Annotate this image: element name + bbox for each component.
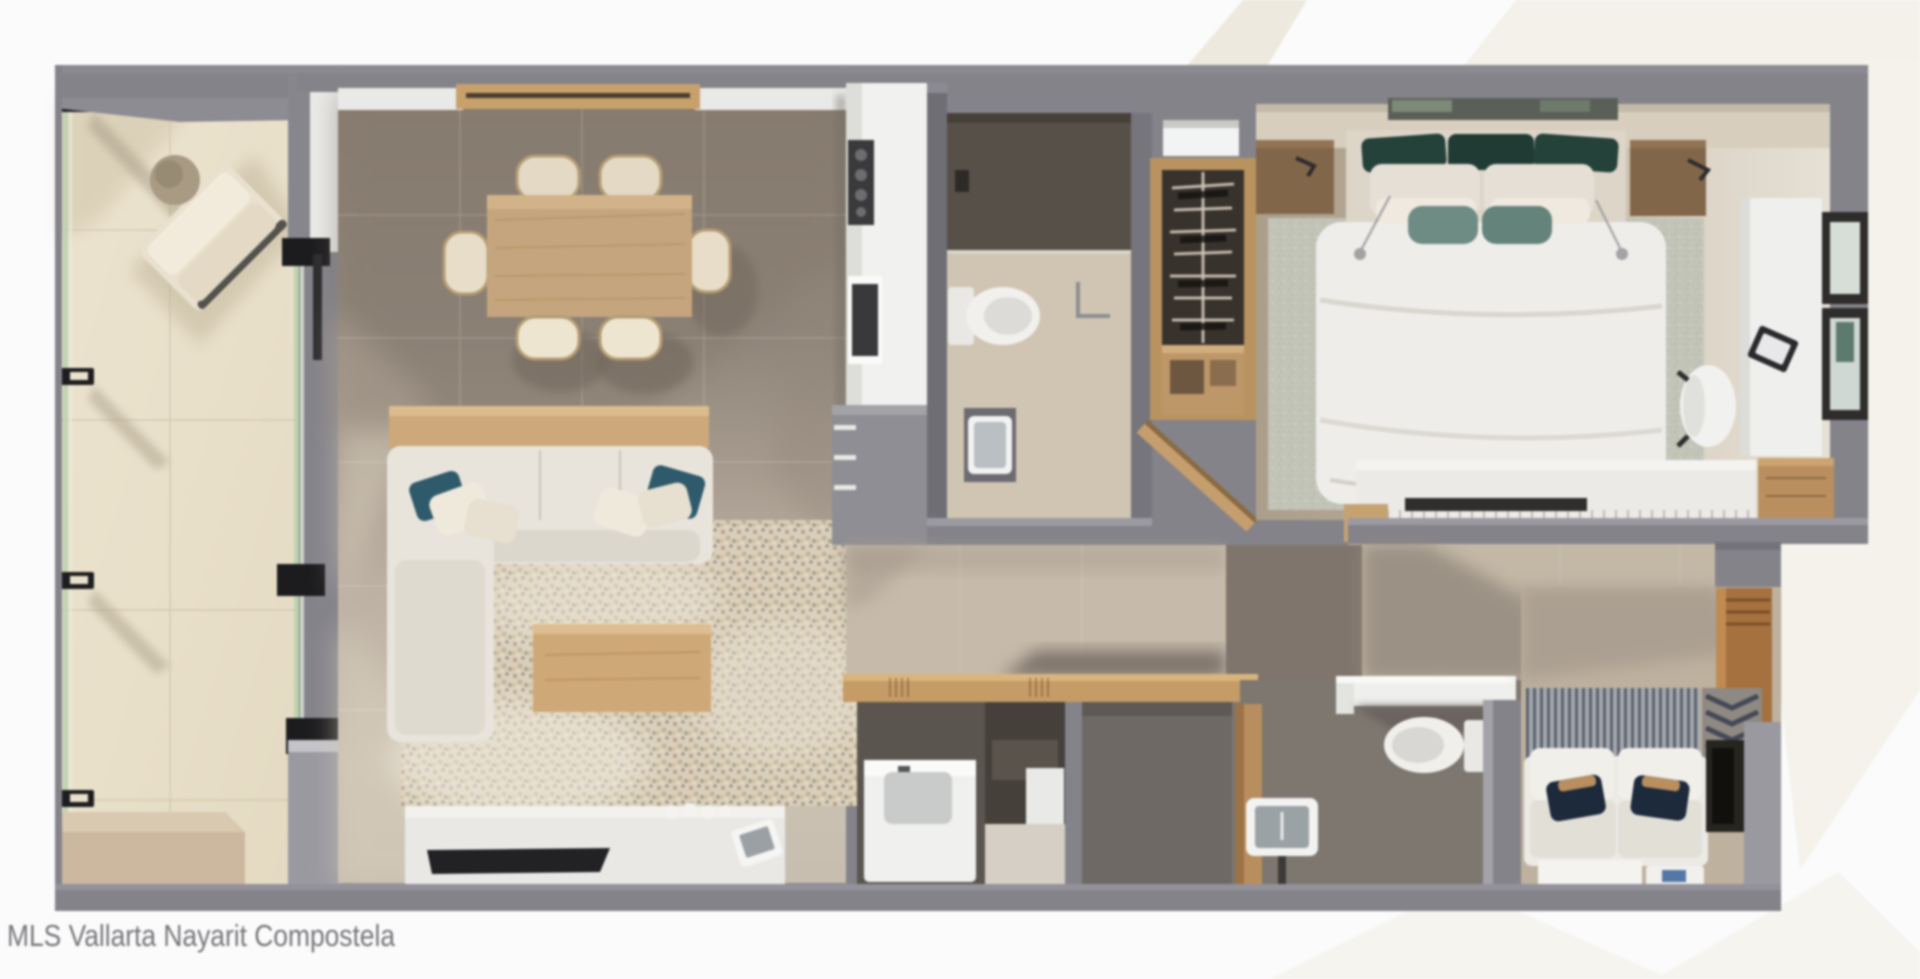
svg-text:MLS Vallarta Nayarit Compostel: MLS Vallarta Nayarit Compostela [7,918,396,953]
